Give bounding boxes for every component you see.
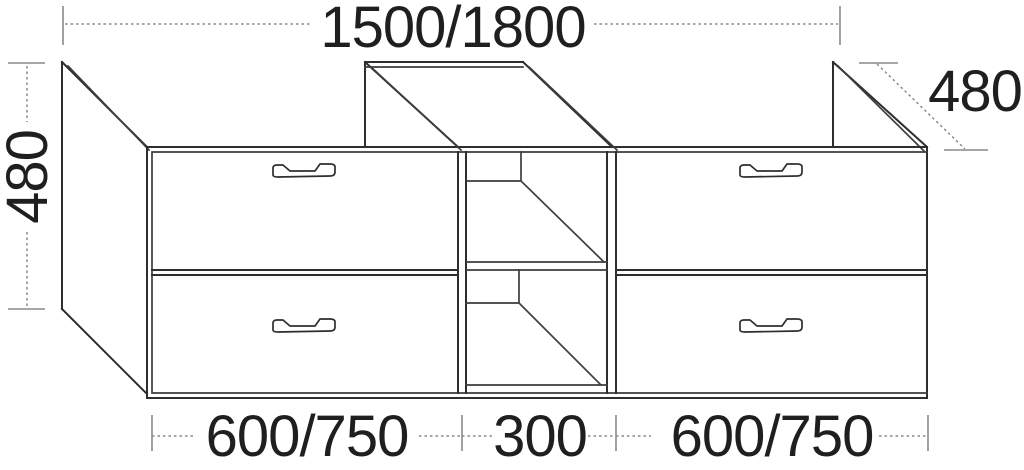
middle-unit-top-panel bbox=[365, 62, 617, 150]
middle-open-unit bbox=[458, 152, 616, 393]
dimension-depth: 480 bbox=[859, 59, 1022, 150]
right-top-drawer-handle bbox=[740, 164, 802, 177]
cabinet-drawing bbox=[62, 62, 927, 398]
left-top-drawer-handle bbox=[273, 164, 335, 177]
bottom-right-width-label: 600/750 bbox=[671, 404, 874, 469]
total-width-label: 1500/1800 bbox=[320, 0, 585, 60]
middle-unit-side-walls bbox=[458, 152, 616, 393]
bottom-left-width-label: 600/750 bbox=[206, 404, 409, 469]
right-side-panel bbox=[833, 62, 927, 151]
front-face bbox=[147, 147, 927, 398]
right-side-panel-thickness-line bbox=[838, 66, 924, 151]
right-drawer-division-lines bbox=[616, 270, 927, 275]
dimension-total-width: 1500/1800 bbox=[63, 0, 840, 60]
depth-label: 480 bbox=[928, 59, 1022, 124]
bottom-middle-width-label: 300 bbox=[493, 404, 587, 469]
left-side-panel-outline bbox=[62, 62, 147, 394]
left-bottom-drawer-handle bbox=[273, 319, 335, 332]
front-face-inner-border bbox=[152, 152, 927, 393]
left-drawer-unit bbox=[152, 164, 458, 332]
technical-drawing-page: 1500/1800 480 480 600/750 300 600/750 bbox=[0, 0, 1024, 470]
left-drawer-division-lines bbox=[152, 270, 458, 275]
middle-top-panel-outline bbox=[365, 62, 612, 147]
right-bottom-drawer-handle bbox=[740, 319, 802, 332]
dimension-height: 480 bbox=[0, 63, 60, 309]
middle-unit-lower-interior-lines bbox=[466, 270, 601, 385]
left-side-panel bbox=[62, 62, 149, 394]
dimension-bottom-widths: 600/750 300 600/750 bbox=[152, 404, 928, 469]
vanity-unit-technical-drawing: 1500/1800 480 480 600/750 300 600/750 bbox=[0, 0, 1024, 470]
height-label: 480 bbox=[0, 130, 60, 224]
left-side-panel-thickness-line bbox=[68, 66, 149, 150]
middle-top-panel-thickness-lines bbox=[365, 67, 617, 150]
front-face-outer-border bbox=[147, 147, 927, 398]
middle-unit-upper-interior-lines bbox=[466, 152, 604, 262]
right-drawer-unit bbox=[616, 164, 927, 332]
middle-unit-shelf-lines bbox=[466, 262, 607, 385]
